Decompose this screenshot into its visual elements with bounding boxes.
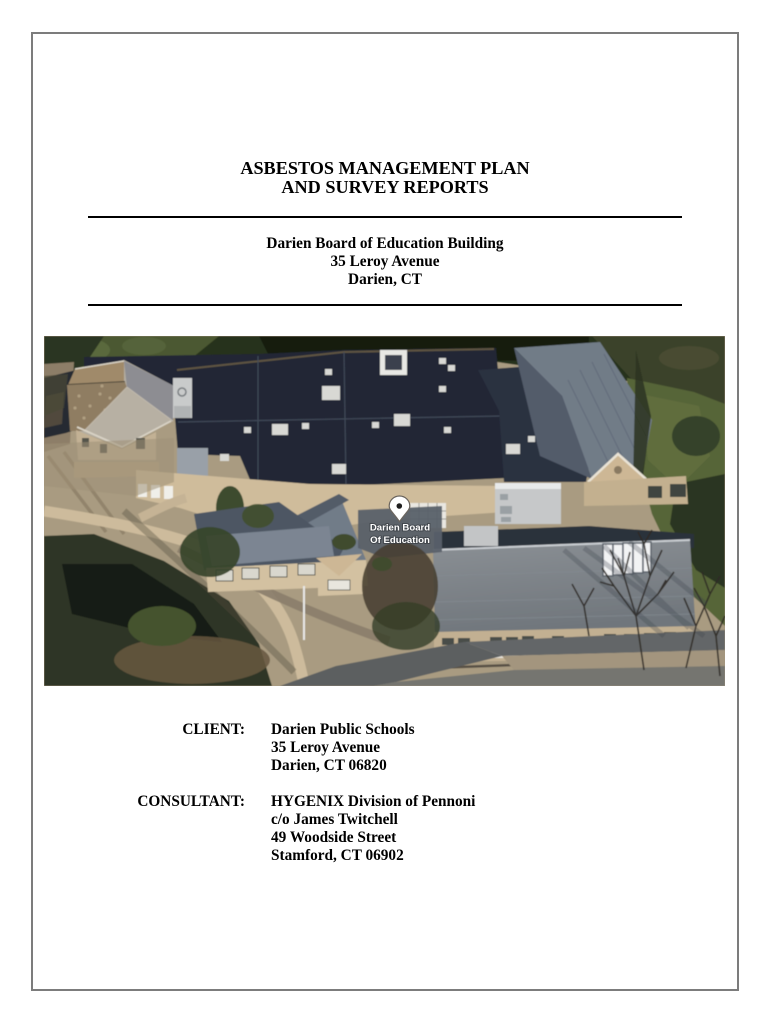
svg-text:Of Education: Of Education [370, 535, 430, 546]
svg-text:Darien Board: Darien Board [370, 523, 430, 534]
